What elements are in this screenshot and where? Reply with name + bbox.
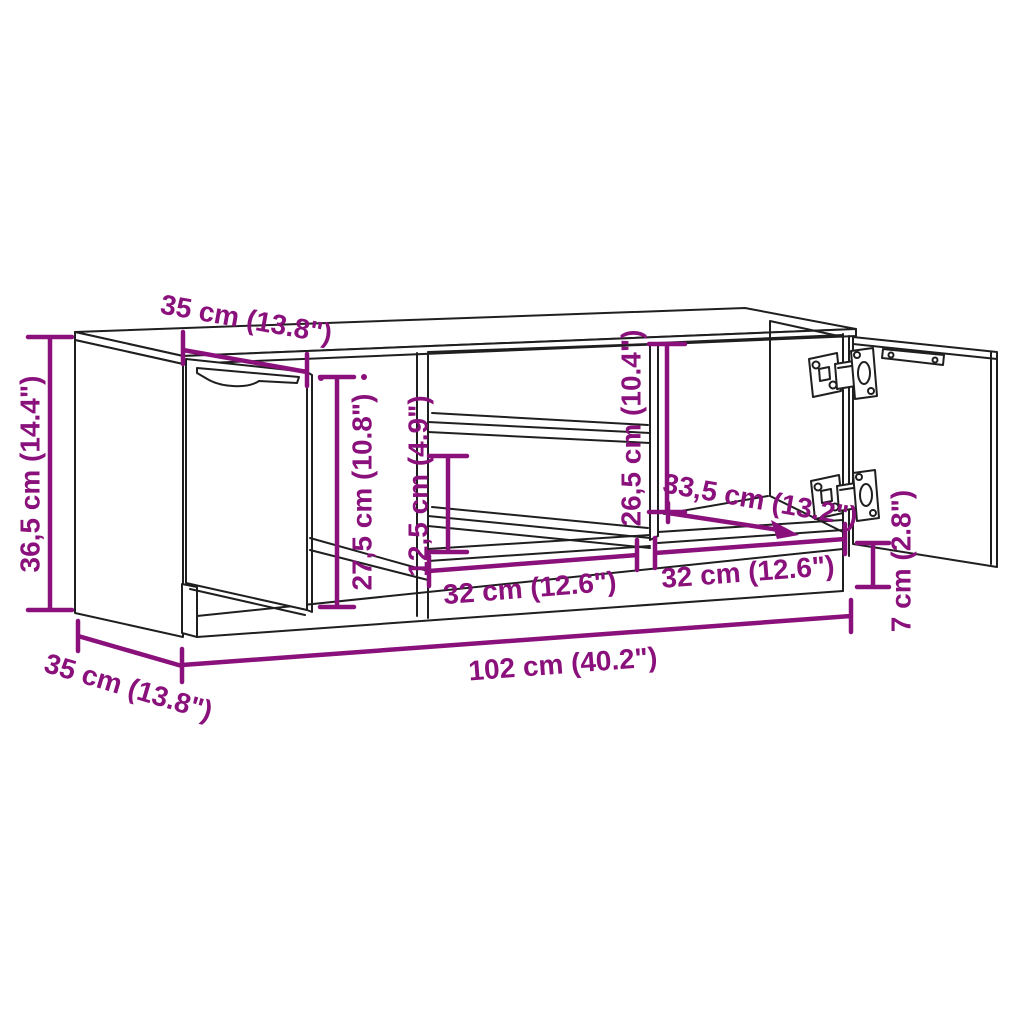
hinge-screw [868,388,874,394]
hinge-slot [819,367,830,381]
plate-screw [889,353,894,358]
hinge-screw [813,362,820,369]
hinge-screw [854,352,860,358]
hinge-screw [815,484,822,491]
hinge-screw [870,510,876,516]
plate-screw [933,358,938,363]
left-door [186,359,312,615]
left-side-panel [75,340,183,637]
hinge-screw [856,474,862,480]
dim-door-height-label: 27,5 cm (10.8") [346,394,377,591]
hinge-screw [830,382,837,389]
diagram-page: 35 cm (13.8") 36,5 cm (14.4") 27,5 cm (1… [0,0,1024,1024]
hinge-cup [860,484,872,506]
front-left-leg [182,584,197,637]
dim-base-height-label: 7 cm (2.8") [885,490,916,632]
dim-shelf-spacing-label: 12,5 cm (4.9") [402,395,433,576]
tv-cabinet-dimension-diagram: 35 cm (13.8") 36,5 cm (14.4") 27,5 cm (1… [0,0,1024,1024]
hinge-cup [858,362,870,384]
left-door-panel [186,359,307,610]
dim-dot [361,374,367,380]
dim-overall-height-label: 36,5 cm (14.4") [14,376,45,573]
dim-side-opening-height-label: 26,5 cm (10.4") [615,330,646,527]
